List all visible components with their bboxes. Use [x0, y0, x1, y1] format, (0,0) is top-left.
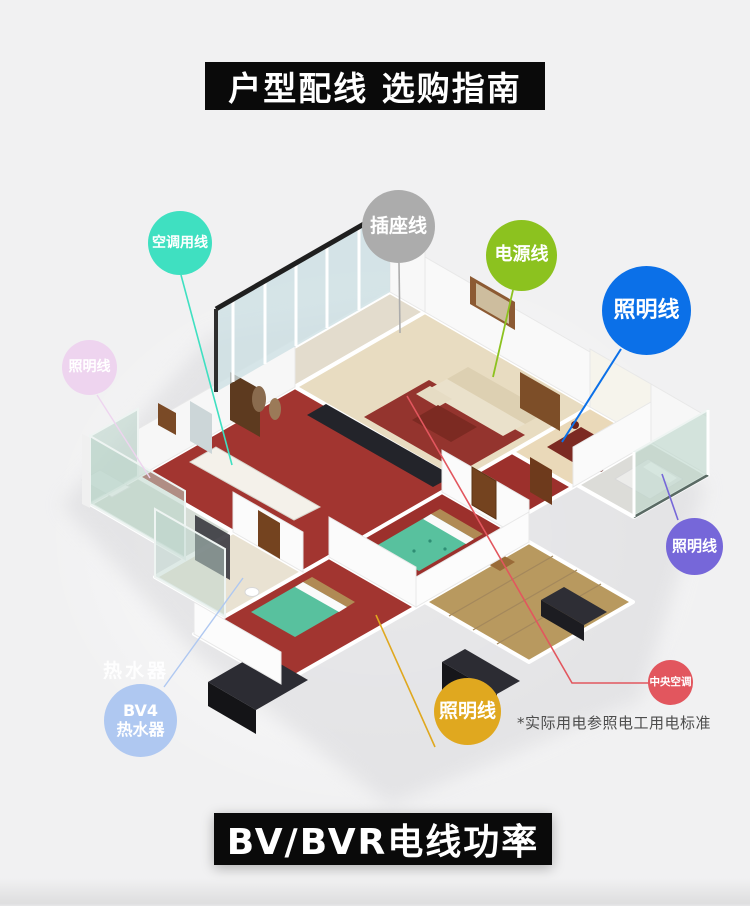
- badge-label: 照明线: [672, 538, 717, 555]
- badge-lighting-wire-purple: 照明线: [666, 518, 723, 575]
- badge-label-line2: 热水器: [116, 721, 164, 739]
- floorplan-illustration: [0, 0, 750, 906]
- curtain: [269, 398, 281, 420]
- water-heater-floating-label: 热水器: [103, 656, 169, 683]
- badge-label: 空调用线: [152, 235, 208, 251]
- badge-lighting-wire-yellow: 照明线: [434, 678, 501, 745]
- badge-bv4-water-heater: BV4 热水器: [104, 684, 177, 757]
- badge-label: 电源线: [495, 245, 549, 266]
- bottom-banner: BV/BVR电线功率: [214, 813, 552, 865]
- blanket-dot: [443, 547, 446, 550]
- badge-socket-wire: 插座线: [362, 190, 435, 263]
- bottom-banner-text: BV/BVR电线功率: [227, 813, 540, 865]
- badge-label-line1: BV4: [123, 702, 158, 720]
- toilet: [245, 588, 259, 597]
- badge-aircon-wire: 空调用线: [148, 211, 212, 275]
- badge-lighting-wire-blue: 照明线: [602, 266, 691, 355]
- badge-lighting-wire-pink: 照明线: [62, 340, 117, 395]
- badge-label: 照明线: [69, 359, 111, 375]
- disclaimer-note: *实际用电参照电工用电标准: [517, 712, 711, 733]
- badge-label: 照明线: [439, 701, 496, 723]
- page-bottom-shadow: [0, 878, 750, 906]
- badge-label: 插座线: [370, 216, 427, 238]
- blanket-dot: [428, 539, 431, 542]
- leader-socket-wire: [399, 263, 400, 333]
- badge-label: 照明线: [613, 298, 679, 323]
- wall-end-post: [82, 434, 90, 508]
- curtain: [252, 386, 266, 412]
- blanket-dot: [412, 549, 415, 552]
- page: 空调用线 插座线 电源线 照明线 照明线 照明线 BV4 热水器 照明线 中央空…: [0, 0, 750, 906]
- title-banner-text: 户型配线 选购指南: [228, 62, 522, 110]
- badge-central-ac: 中央空调: [648, 660, 693, 705]
- badge-power-wire: 电源线: [486, 220, 557, 291]
- badge-label: 中央空调: [650, 676, 692, 688]
- title-banner: 户型配线 选购指南: [205, 62, 545, 110]
